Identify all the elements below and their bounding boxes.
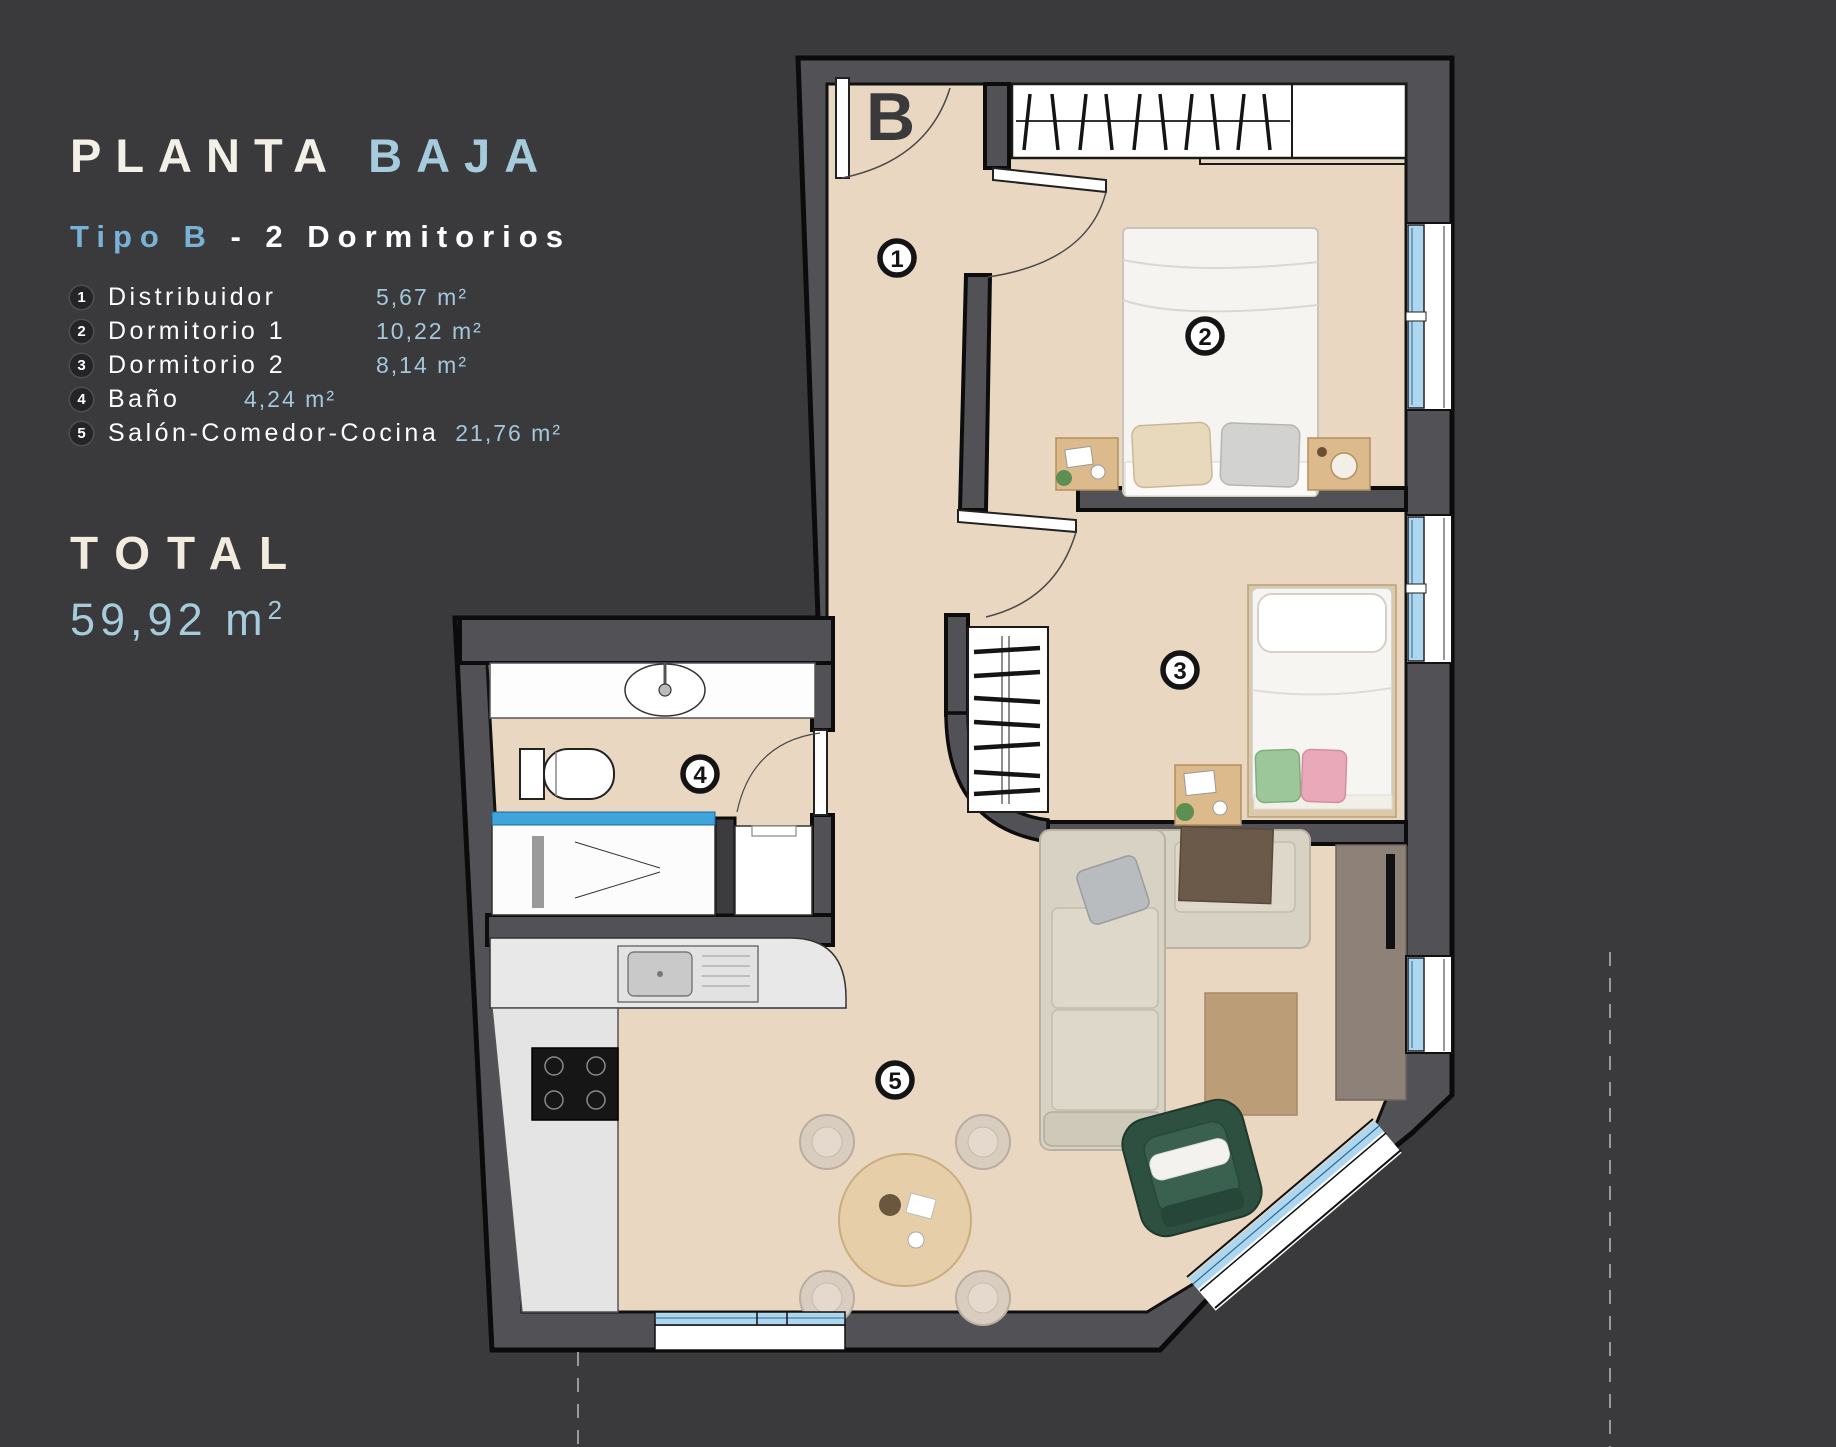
cooktop-icon (532, 1048, 618, 1120)
window-icon-bottom (655, 1312, 845, 1350)
svg-text:5: 5 (888, 1068, 901, 1095)
svg-text:4: 4 (693, 762, 707, 789)
svg-text:1: 1 (890, 246, 903, 273)
room-badge-4: 4 (683, 757, 717, 791)
tv-icon (1386, 854, 1395, 949)
bathroom-niche (735, 826, 812, 915)
wall-shower-divider (715, 818, 735, 915)
svg-text:2: 2 (1198, 324, 1211, 351)
chair-icon (956, 1271, 1010, 1325)
sofa-throw (1179, 826, 1274, 903)
nightstand-icon (1308, 438, 1370, 490)
room-badge-5: 5 (878, 1063, 912, 1097)
wall-corridor-bedroom1 (960, 275, 990, 510)
floorplan-canvas: B 1 2 3 4 5 (0, 0, 1836, 1447)
dining-table-icon (839, 1154, 971, 1286)
svg-text:3: 3 (1173, 658, 1186, 685)
bed-single-icon (1248, 585, 1396, 817)
chair-icon (800, 1115, 854, 1169)
bed-double-icon (1123, 228, 1318, 496)
window-icon-living (1406, 956, 1452, 1053)
shower-glass (492, 812, 715, 825)
bathroom-vanity (490, 663, 815, 718)
tv-unit-icon (1336, 845, 1406, 1100)
shower-icon (492, 812, 715, 915)
kitchen-counter-sink (490, 938, 846, 1008)
window-icon-bedroom1 (1406, 223, 1452, 410)
chair-icon (956, 1115, 1010, 1169)
room-badge-3: 3 (1163, 653, 1197, 687)
nightstand-icon (1175, 765, 1241, 825)
rug-icon (1205, 993, 1297, 1115)
wall-closet2-west (946, 615, 968, 715)
room-badge-2: 2 (1188, 319, 1222, 353)
entrance-closet (1012, 84, 1406, 164)
wall-bathroom-north (460, 618, 833, 663)
bedroom2-closet (968, 627, 1048, 812)
room-badge-1: 1 (880, 241, 914, 275)
window-icon-bedroom2 (1406, 515, 1452, 663)
plan-letter: B (866, 79, 915, 155)
nightstand-icon (1056, 438, 1118, 490)
toilet-icon (520, 749, 614, 799)
wall-entrance-stub (985, 84, 1009, 168)
